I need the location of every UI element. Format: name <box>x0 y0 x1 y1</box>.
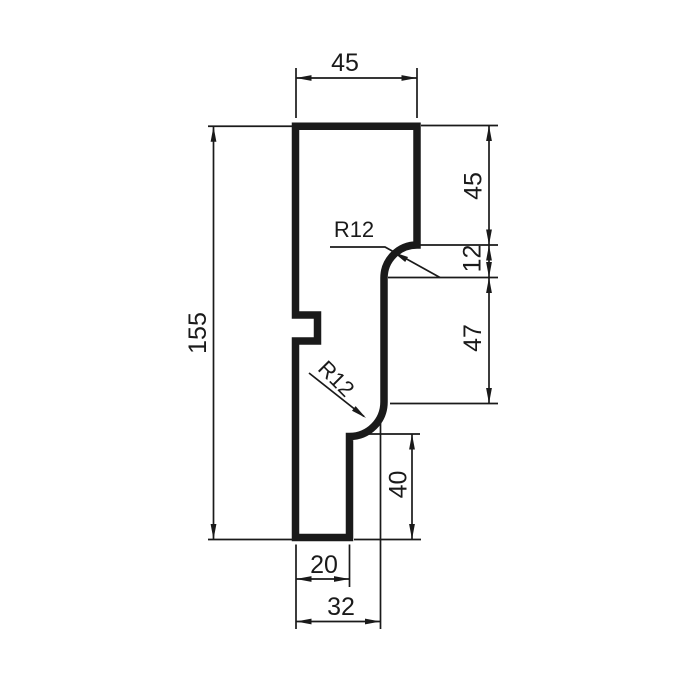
technical-drawing-canvas: 45 155 45 12 47 40 20 32 R12 R12 <box>0 0 686 686</box>
total-height-label: 155 <box>184 312 212 354</box>
top-width-label: 45 <box>331 49 359 77</box>
bottom-width-label: 20 <box>310 551 338 579</box>
profile-drawing: 45 155 45 12 47 40 20 32 R12 R12 <box>0 0 686 686</box>
middle-height-label: 47 <box>459 324 487 352</box>
upper-radius-label: R12 <box>334 217 374 242</box>
bottom-step-width-label: 32 <box>327 593 355 621</box>
right-upper-height-label: 45 <box>460 172 488 200</box>
step-height-label: 12 <box>459 245 487 273</box>
drawing-background <box>0 0 686 686</box>
lower-right-height-label: 40 <box>385 471 413 499</box>
